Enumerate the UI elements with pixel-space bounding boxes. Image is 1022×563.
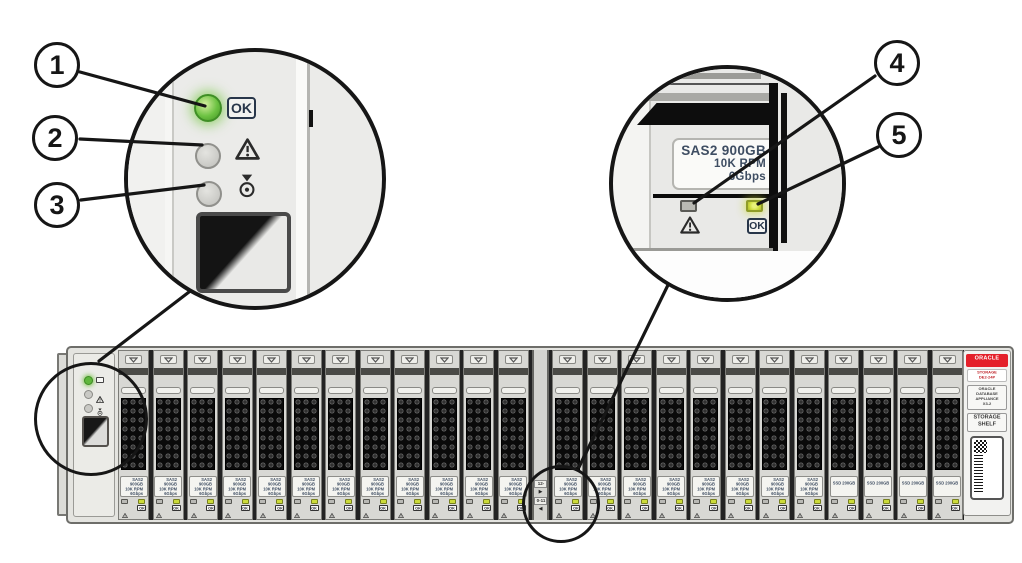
drive-vent-grille: [397, 398, 422, 470]
drive-handle-bar: [590, 387, 615, 394]
drive-handle-bar: [466, 387, 491, 394]
drive-latch-slot: [795, 368, 824, 375]
drive-ok-led: [483, 499, 490, 504]
drive-vent-grille: [624, 398, 649, 470]
grille-bottom-wedge: [637, 103, 777, 125]
drive-service-led: [680, 200, 697, 212]
drive-bay-18: SAS2 900GB10K RPM6GbpsOK: [759, 350, 790, 520]
drive-release-button: [505, 355, 522, 364]
drive-leds: OK: [156, 499, 181, 523]
warning-triangle-icon: [832, 505, 838, 523]
drive-release-button: [160, 355, 177, 364]
warning-triangle-icon: [866, 505, 872, 523]
drive-release-button: [835, 355, 852, 364]
callout-4: 4: [874, 40, 920, 86]
drive-label: SAS2 900GB10K RPM6Gbps: [223, 476, 251, 497]
drive-ok-led: [414, 499, 421, 504]
warning-triangle-icon: [225, 505, 231, 523]
drive-handle-bar: [294, 387, 319, 394]
drive-label: SAS2 900GB10K RPM6Gbps: [396, 476, 424, 497]
locate-icon: [235, 173, 259, 203]
drive-handle-bar: [397, 387, 422, 394]
drive-latch-slot: [726, 368, 755, 375]
triangle-down-icon: [509, 357, 518, 363]
drive-release-button: [732, 355, 749, 364]
triangle-down-icon: [164, 357, 173, 363]
drive-handle-bar: [624, 387, 649, 394]
drive-release-button: [470, 355, 487, 364]
drive-release-button: [904, 355, 921, 364]
drive-ok-label: OK: [206, 505, 215, 511]
drive-bay-19: SAS2 900GB10K RPM6GbpsOK: [794, 350, 825, 520]
drive-latch-slot: [361, 368, 390, 375]
warning-triangle-icon: [122, 505, 128, 523]
drive-latch-slot: [760, 368, 789, 375]
warning-triangle-icon: [763, 505, 769, 523]
drive-leds: OK: [866, 499, 891, 523]
drive-release-button: [401, 355, 418, 364]
qr-code: [974, 440, 987, 453]
drive-ok-label: OK: [172, 505, 181, 511]
drive-ok-led: [380, 499, 387, 504]
drive-ok-led: [607, 499, 614, 504]
drive-handle-bar: [693, 387, 718, 394]
drive-release-button: [436, 355, 453, 364]
ok-led: [194, 94, 222, 122]
drive-vent-grille: [259, 398, 284, 470]
drive-latch-slot: [864, 368, 893, 375]
drive-ok-led: [917, 499, 924, 504]
drive-handle-bar: [432, 387, 457, 394]
drive-leds: OK: [328, 499, 353, 523]
drive-handle-bar: [501, 387, 526, 394]
warning-triangle-icon: [432, 505, 438, 523]
drive-latch-slot: [588, 368, 617, 375]
callout-1: 1: [34, 42, 80, 88]
warning-triangle-icon: [235, 138, 260, 165]
drive-bay-23: SSD 200GBOK: [932, 350, 963, 520]
drive-service-led: [156, 499, 163, 504]
drive-label: SAS2 900GB10K RPM6Gbps: [795, 476, 823, 497]
triangle-down-icon: [336, 357, 345, 363]
warning-triangle-icon: [363, 505, 369, 523]
drive-magnifier: SAS2 900GB 10K RPM 6Gbps OK: [609, 65, 846, 302]
warning-triangle-icon: [398, 505, 404, 523]
callout-2: 2: [32, 115, 78, 161]
drive-handle-bar: [831, 387, 856, 394]
drive-handle-bar: [797, 387, 822, 394]
drive-latch-slot: [691, 368, 720, 375]
right-endcap: ORACLE STORAGE DE2-24P ORACLE DATABASE A…: [963, 350, 1011, 516]
drive-ok-label: OK: [482, 505, 491, 511]
drive-leds: OK: [624, 499, 649, 523]
drive-ok-led: [242, 499, 249, 504]
drive-release-button: [766, 355, 783, 364]
drive-leds: OK: [190, 499, 215, 523]
drive-ok-label: OK: [275, 505, 284, 511]
drive-release-button: [229, 355, 246, 364]
drive-vent-grille: [190, 398, 215, 470]
warning-triangle-icon: [935, 505, 941, 523]
drive-latch-slot: [188, 368, 217, 375]
drive-latch-slot: [499, 368, 528, 375]
drive-label: SAS2 900GB10K RPM6Gbps: [623, 476, 651, 497]
drive-latch-slot: [933, 368, 962, 375]
drive-label: SAS2 900GB10K RPM6Gbps: [189, 476, 217, 497]
drive-label: SSD 200GB: [864, 476, 892, 497]
drive-vent-grille: [294, 398, 319, 470]
drive-vent-grille: [762, 398, 787, 470]
drive-latch-slot: [292, 368, 321, 375]
drive-vent-grille: [900, 398, 925, 470]
drive-label: SAS2 900GB10K RPM6Gbps: [120, 476, 148, 497]
drive-vent-grille: [501, 398, 526, 470]
drive-ok-led: [449, 499, 456, 504]
drive-release-button: [697, 355, 714, 364]
panel-handle-detail: [196, 212, 291, 293]
drive-handle-bar: [190, 387, 215, 394]
panel-right-edge: [307, 52, 310, 306]
drive-label: SAS2 900GB10K RPM6Gbps: [657, 476, 685, 497]
drive-handle-bar: [866, 387, 891, 394]
drive-ok-led: [745, 499, 752, 504]
triangle-down-icon: [233, 357, 242, 363]
drive-vent-grille: [328, 398, 353, 470]
drive-service-led: [762, 499, 769, 504]
drive-leds: OK: [259, 499, 284, 523]
drive-label: SAS2 900GB10K RPM6Gbps: [692, 476, 720, 497]
drive-bay-4: SAS2 900GB10K RPM6GbpsOK: [256, 350, 287, 520]
drive-handle-bar: [555, 387, 580, 394]
drive-ok-label: OK: [640, 505, 649, 511]
panel-right-gap: [296, 52, 307, 306]
triangle-down-icon: [302, 357, 311, 363]
drive-latch-slot: [553, 368, 582, 375]
drive-leds: OK: [797, 499, 822, 523]
shelf-type-badge: STORAGE SHELF: [967, 413, 1007, 432]
drive-vent-grille: [590, 398, 615, 470]
drive-ok-label: OK: [882, 505, 891, 511]
drive-highlight-ring: [522, 465, 600, 543]
drive-leds: OK: [432, 499, 457, 523]
warning-triangle-icon: [501, 505, 507, 523]
drive-capacity-label: SAS2 900GB 10K RPM 6Gbps: [672, 138, 776, 190]
drive-leds: OK: [121, 499, 146, 523]
drive-bay-10: SAS2 900GB10K RPM6GbpsOK: [463, 350, 494, 520]
drive-bay-5: SAS2 900GB10K RPM6GbpsOK: [291, 350, 322, 520]
drive-release-button: [194, 355, 211, 364]
drive-ok-led: [779, 499, 786, 504]
drive-latch-slot: [898, 368, 927, 375]
triangle-down-icon: [129, 357, 138, 363]
drive-vent-grille: [555, 398, 580, 470]
drive-label: SSD 200GB: [830, 476, 858, 497]
triangle-down-icon: [701, 357, 710, 363]
drive-latch-slot: [657, 368, 686, 375]
drive-label: SAS2 900GB10K RPM6Gbps: [258, 476, 286, 497]
triangle-down-icon: [805, 357, 814, 363]
drive-handle-bar: [328, 387, 353, 394]
drive-vent-grille: [225, 398, 250, 470]
drive-release-button: [870, 355, 887, 364]
drive-ok-led: [207, 499, 214, 504]
drive-bay-9: SAS2 900GB10K RPM6GbpsOK: [429, 350, 460, 520]
drive-ok-led: [276, 499, 283, 504]
drive-handle-bar: [259, 387, 284, 394]
triangle-down-icon: [198, 357, 207, 363]
drive-ok-led: [710, 499, 717, 504]
storage-shelf-figure: 12-23▶0-11◀ SAS2 900GB10K RPM6GbpsOKSAS2…: [0, 0, 1022, 563]
drive-leds: OK: [466, 499, 491, 523]
warning-triangle-icon: [797, 505, 803, 523]
drive-handle-line: [665, 83, 769, 85]
drive-leds: OK: [935, 499, 960, 523]
oracle-logo: ORACLE: [966, 354, 1008, 367]
drive-leds: OK: [363, 499, 388, 523]
drive-label: SAS2 900GB10K RPM6Gbps: [292, 476, 320, 497]
locate-led: [196, 181, 222, 207]
drive-latch-slot: [622, 368, 651, 375]
drive-release-button: [628, 355, 645, 364]
drive-ok-led: [345, 499, 352, 504]
triangle-down-icon: [667, 357, 676, 363]
triangle-down-icon: [563, 357, 572, 363]
drive-leds: OK: [693, 499, 718, 523]
model-badge: STORAGE DE2-24P: [967, 369, 1007, 382]
below-drive-area: [613, 251, 842, 302]
warning-triangle-icon: [680, 216, 700, 239]
drive-vent-grille: [156, 398, 181, 470]
drive-ok-label: OK: [344, 505, 353, 511]
drive-ok-label: OK: [744, 505, 753, 511]
drive-leds: OK: [397, 499, 422, 523]
panel-left-margin: [128, 52, 165, 306]
drive-ok-label: OK: [413, 505, 422, 511]
triangle-down-icon: [770, 357, 779, 363]
drive-handle-bar: [659, 387, 684, 394]
drive-latch-slot: [257, 368, 286, 375]
triangle-down-icon: [598, 357, 607, 363]
drive-ok-label: OK: [606, 505, 615, 511]
drive-bay-15: SAS2 900GB10K RPM6GbpsOK: [656, 350, 687, 520]
drive-release-button: [298, 355, 315, 364]
drive-service-led: [501, 499, 508, 504]
drive-ok-led: [814, 499, 821, 504]
drive-ok-label: OK: [241, 505, 250, 511]
drive-service-led: [121, 499, 128, 504]
drive-handle-bar: [225, 387, 250, 394]
drive-service-led: [225, 499, 232, 504]
drive-bay-2: SAS2 900GB10K RPM6GbpsOK: [187, 350, 218, 520]
drive-handle-bar: [156, 387, 181, 394]
triangle-down-icon: [405, 357, 414, 363]
drive-service-led: [935, 499, 942, 504]
chassis-rail: [781, 93, 787, 243]
drive-release-button: [332, 355, 349, 364]
drive-handle-shadow: [673, 73, 761, 79]
drive-label: SSD 200GB: [899, 476, 927, 497]
drive-label: SAS2 900GB10K RPM6Gbps: [726, 476, 754, 497]
drive-latch-slot: [154, 368, 183, 375]
drive-vent-grille: [432, 398, 457, 470]
drive-leds: OK: [900, 499, 925, 523]
drive-ok-label: OK: [137, 505, 146, 511]
drive-bay-1: SAS2 900GB10K RPM6GbpsOK: [153, 350, 184, 520]
drive-ok-label: OK: [675, 505, 684, 511]
drive-ok-label: OK: [847, 505, 856, 511]
panel-magnifier: OK: [124, 48, 386, 310]
drive-handle-bar: [762, 387, 787, 394]
drive-ok-label: OK: [310, 505, 319, 511]
drive-service-led: [259, 499, 266, 504]
warning-triangle-icon: [329, 505, 335, 523]
drive-service-led: [294, 499, 301, 504]
drive-vent-grille: [466, 398, 491, 470]
warning-triangle-icon: [728, 505, 734, 523]
triangle-down-icon: [874, 357, 883, 363]
drive-label: SAS2 900GB10K RPM6Gbps: [761, 476, 789, 497]
drive-latch-slot: [223, 368, 252, 375]
drive-service-led: [190, 499, 197, 504]
triangle-down-icon: [632, 357, 641, 363]
drive-bay-6: SAS2 900GB10K RPM6GbpsOK: [325, 350, 356, 520]
triangle-down-icon: [474, 357, 483, 363]
drive-bay-22: SSD 200GBOK: [897, 350, 928, 520]
drive-ok-led: [173, 499, 180, 504]
drive-ok-label: OK: [916, 505, 925, 511]
chassis-tick: [309, 110, 313, 127]
warning-triangle-icon: [625, 505, 631, 523]
drive-service-led: [432, 499, 439, 504]
drive-service-led: [659, 499, 666, 504]
product-badge: ORACLE DATABASE APPLIANCE X3-2: [967, 385, 1007, 410]
warning-triangle-icon: [156, 505, 162, 523]
callout-5: 5: [876, 112, 922, 158]
drive-service-led: [363, 499, 370, 504]
drive-service-led: [397, 499, 404, 504]
drive-release-button: [263, 355, 280, 364]
drive-divider-line: [653, 194, 783, 198]
drive-ok-label: OK: [778, 505, 787, 511]
drive-release-button: [801, 355, 818, 364]
drive-service-led: [624, 499, 631, 504]
drive-bay-21: SSD 200GBOK: [863, 350, 894, 520]
drive-ok-label: OK: [951, 505, 960, 511]
drive-ok-label: OK: [448, 505, 457, 511]
drive-label: SAS2 900GB10K RPM6Gbps: [154, 476, 182, 497]
warning-triangle-icon: [901, 505, 907, 523]
triangle-down-icon: [440, 357, 449, 363]
drive-leds: OK: [728, 499, 753, 523]
drive-vent-grille: [935, 398, 960, 470]
warning-triangle-icon: [260, 505, 266, 523]
drive-ok-led: [848, 499, 855, 504]
drive-leds: OK: [831, 499, 856, 523]
drive-latch-slot: [430, 368, 459, 375]
drive-handle-bar: [363, 387, 388, 394]
drive-latch-slot: [326, 368, 355, 375]
drive-release-button: [663, 355, 680, 364]
drive-label: SAS2 900GB10K RPM6Gbps: [430, 476, 458, 497]
drive-ok-led: [641, 499, 648, 504]
triangle-down-icon: [371, 357, 380, 363]
panel-highlight-ring: [34, 362, 148, 476]
drive-release-button: [125, 355, 142, 364]
triangle-down-icon: [839, 357, 848, 363]
drive-bay-20: SSD 200GBOK: [828, 350, 859, 520]
drive-leds: OK: [659, 499, 684, 523]
triangle-down-icon: [736, 357, 745, 363]
drive-ok-led: [138, 499, 145, 504]
drive-ok-label: OK: [813, 505, 822, 511]
drive-leds: OK: [762, 499, 787, 523]
drive-ok-led: [676, 499, 683, 504]
grille-shadow-band: [639, 93, 775, 101]
drive-leds: OK: [225, 499, 250, 523]
barcode: [974, 455, 983, 493]
drive-handle-bar: [728, 387, 753, 394]
drive-latch-slot: [395, 368, 424, 375]
drive-release-button: [367, 355, 384, 364]
drive-service-led: [328, 499, 335, 504]
drive-bay-7: SAS2 900GB10K RPM6GbpsOK: [360, 350, 391, 520]
drive-release-button: [559, 355, 576, 364]
drive-ok-label: OK: [747, 218, 767, 234]
drive-label: SAS2 900GB10K RPM6Gbps: [327, 476, 355, 497]
drive-latch-slot: [464, 368, 493, 375]
serial-label: [970, 436, 1004, 500]
drive-ok-label: OK: [379, 505, 388, 511]
drive-service-led: [797, 499, 804, 504]
warning-triangle-icon: [191, 505, 197, 523]
warning-triangle-icon: [467, 505, 473, 523]
drive-vent-grille: [866, 398, 891, 470]
drive-release-button: [594, 355, 611, 364]
ok-label: OK: [227, 97, 256, 119]
drive-latch-slot: [829, 368, 858, 375]
drive-bay-3: SAS2 900GB10K RPM6GbpsOK: [222, 350, 253, 520]
warning-triangle-icon: [294, 505, 300, 523]
panel-left-edge: [165, 52, 174, 306]
drive-vent-grille: [728, 398, 753, 470]
drive-bay-16: SAS2 900GB10K RPM6GbpsOK: [690, 350, 721, 520]
warning-triangle-icon: [659, 505, 665, 523]
drive-service-led: [728, 499, 735, 504]
drive-handle-bar: [935, 387, 960, 394]
triangle-down-icon: [267, 357, 276, 363]
warning-triangle-icon: [694, 505, 700, 523]
drive-release-button: [939, 355, 956, 364]
drive-ok-label: OK: [709, 505, 718, 511]
drive-right-rail: [769, 83, 778, 251]
drive-bay-14: SAS2 900GB10K RPM6GbpsOK: [621, 350, 652, 520]
drive-ok-led: [883, 499, 890, 504]
drive-service-led: [900, 499, 907, 504]
drive-vent-grille: [659, 398, 684, 470]
drive-label: SAS2 900GB10K RPM6Gbps: [361, 476, 389, 497]
drive-vent-grille: [797, 398, 822, 470]
triangle-down-icon: [908, 357, 917, 363]
triangle-down-icon: [943, 357, 952, 363]
drive-service-led: [466, 499, 473, 504]
drive-ok-led: [311, 499, 318, 504]
drive-bay-17: SAS2 900GB10K RPM6GbpsOK: [725, 350, 756, 520]
drive-vent-grille: [363, 398, 388, 470]
drive-ok-led: [952, 499, 959, 504]
drive-service-led: [831, 499, 838, 504]
drive-vent-grille: [831, 398, 856, 470]
drive-label: SAS2 900GB10K RPM6Gbps: [465, 476, 493, 497]
